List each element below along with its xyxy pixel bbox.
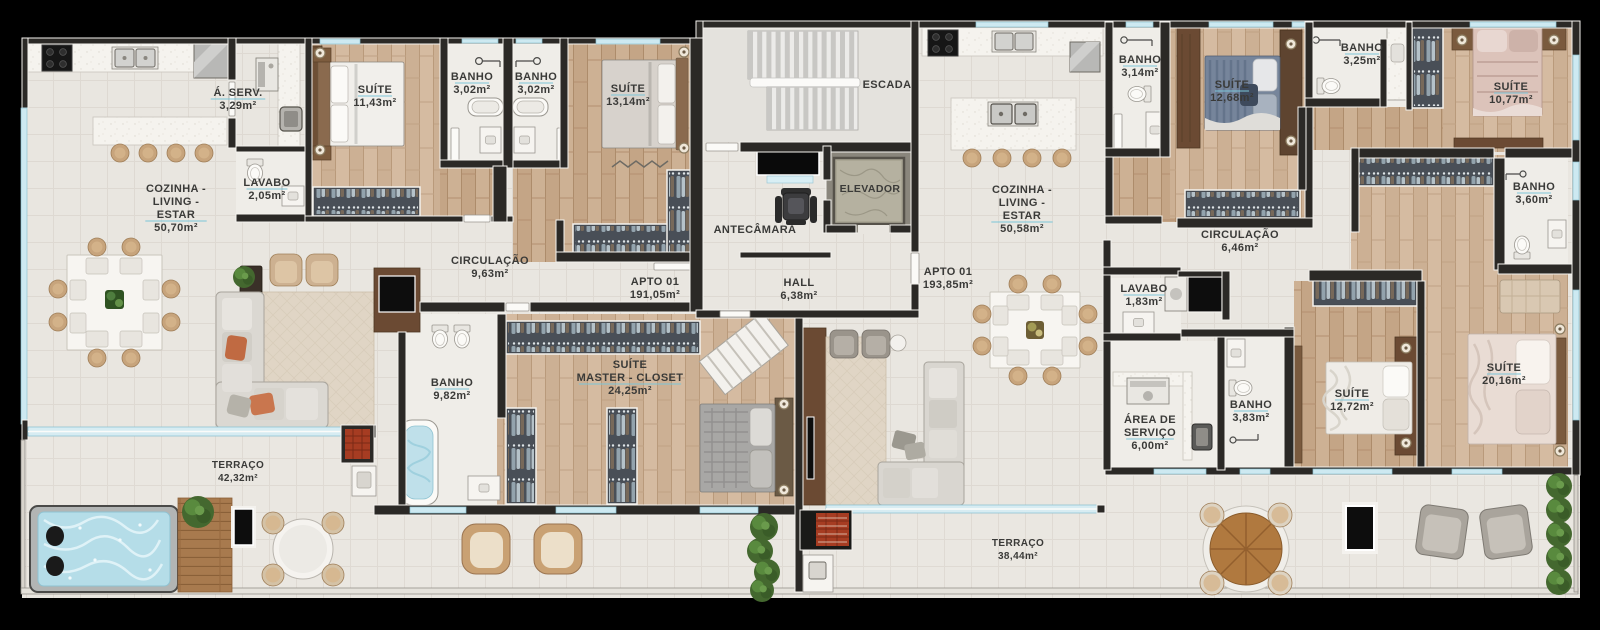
- svg-text:COZINHA -: COZINHA -: [146, 183, 206, 195]
- svg-text:24,25m²: 24,25m²: [608, 385, 652, 397]
- svg-text:SUÍTE: SUÍTE: [1487, 361, 1521, 374]
- svg-text:50,70m²: 50,70m²: [154, 222, 198, 234]
- svg-text:SUÍTE: SUÍTE: [1335, 387, 1369, 400]
- svg-text:13,14m²: 13,14m²: [606, 96, 650, 108]
- svg-text:LAVABO: LAVABO: [1120, 283, 1167, 295]
- svg-text:ELEVADOR: ELEVADOR: [840, 183, 901, 195]
- svg-text:SUÍTE: SUÍTE: [358, 83, 392, 96]
- svg-text:3,29m²: 3,29m²: [219, 100, 256, 112]
- svg-text:TERRAÇO: TERRAÇO: [992, 538, 1044, 549]
- svg-text:11,43m²: 11,43m²: [353, 97, 396, 109]
- svg-text:ÁREA DE: ÁREA DE: [1124, 413, 1176, 426]
- svg-text:LAVABO: LAVABO: [243, 177, 290, 189]
- svg-text:TERRAÇO: TERRAÇO: [212, 460, 264, 471]
- svg-text:12,72m²: 12,72m²: [1330, 401, 1374, 413]
- svg-text:193,85m²: 193,85m²: [923, 279, 973, 291]
- svg-text:LIVING -: LIVING -: [999, 197, 1046, 209]
- svg-text:APTO 01: APTO 01: [631, 276, 679, 288]
- svg-text:6,38m²: 6,38m²: [780, 290, 817, 302]
- svg-text:1,83m²: 1,83m²: [1125, 296, 1162, 308]
- svg-text:BANHO: BANHO: [431, 377, 473, 389]
- svg-text:BANHO: BANHO: [1230, 399, 1272, 411]
- svg-text:ESCADA: ESCADA: [863, 79, 912, 91]
- svg-text:BANHO: BANHO: [1119, 54, 1161, 66]
- svg-text:ESTAR: ESTAR: [157, 209, 195, 221]
- svg-text:10,77m²: 10,77m²: [1489, 94, 1533, 106]
- svg-text:2,05m²: 2,05m²: [248, 190, 285, 202]
- svg-text:12,68m²: 12,68m²: [1210, 92, 1254, 104]
- svg-text:CIRCULAÇÃO: CIRCULAÇÃO: [451, 254, 529, 267]
- svg-text:SUÍTE: SUÍTE: [1215, 78, 1249, 91]
- svg-text:BANHO: BANHO: [515, 71, 557, 83]
- svg-text:38,44m²: 38,44m²: [998, 551, 1038, 562]
- svg-text:BANHO: BANHO: [1513, 181, 1555, 193]
- svg-text:SUÍTE: SUÍTE: [613, 358, 647, 371]
- svg-text:BANHO: BANHO: [451, 71, 493, 83]
- svg-text:9,82m²: 9,82m²: [433, 390, 470, 402]
- svg-text:3,14m²: 3,14m²: [1121, 67, 1158, 79]
- svg-text:20,16m²: 20,16m²: [1482, 375, 1526, 387]
- svg-text:3,60m²: 3,60m²: [1515, 194, 1552, 206]
- svg-text:HALL: HALL: [784, 277, 815, 289]
- svg-text:42,32m²: 42,32m²: [218, 473, 258, 484]
- svg-text:50,58m²: 50,58m²: [1000, 223, 1044, 235]
- svg-text:SUÍTE: SUÍTE: [1494, 80, 1528, 93]
- svg-text:ANTECÂMARA: ANTECÂMARA: [714, 223, 797, 236]
- svg-text:COZINHA -: COZINHA -: [992, 184, 1052, 196]
- svg-text:Á. SERV.: Á. SERV.: [213, 86, 262, 99]
- svg-text:LIVING -: LIVING -: [153, 196, 200, 208]
- svg-text:BANHO: BANHO: [1341, 42, 1383, 54]
- svg-text:9,63m²: 9,63m²: [471, 268, 508, 280]
- svg-text:6,00m²: 6,00m²: [1131, 440, 1168, 452]
- svg-text:SUÍTE: SUÍTE: [611, 82, 645, 95]
- svg-text:APTO 01: APTO 01: [924, 266, 972, 278]
- svg-text:191,05m²: 191,05m²: [630, 289, 680, 301]
- svg-text:3,83m²: 3,83m²: [1232, 412, 1269, 424]
- svg-text:ESTAR: ESTAR: [1003, 210, 1041, 222]
- svg-text:CIRCULAÇÃO: CIRCULAÇÃO: [1201, 228, 1279, 241]
- svg-text:SERVIÇO: SERVIÇO: [1124, 427, 1176, 439]
- svg-text:6,46m²: 6,46m²: [1221, 242, 1258, 254]
- svg-text:3,25m²: 3,25m²: [1343, 55, 1380, 67]
- svg-text:MASTER - CLOSET: MASTER - CLOSET: [577, 372, 684, 384]
- svg-text:3,02m²: 3,02m²: [453, 84, 490, 96]
- svg-text:3,02m²: 3,02m²: [517, 84, 554, 96]
